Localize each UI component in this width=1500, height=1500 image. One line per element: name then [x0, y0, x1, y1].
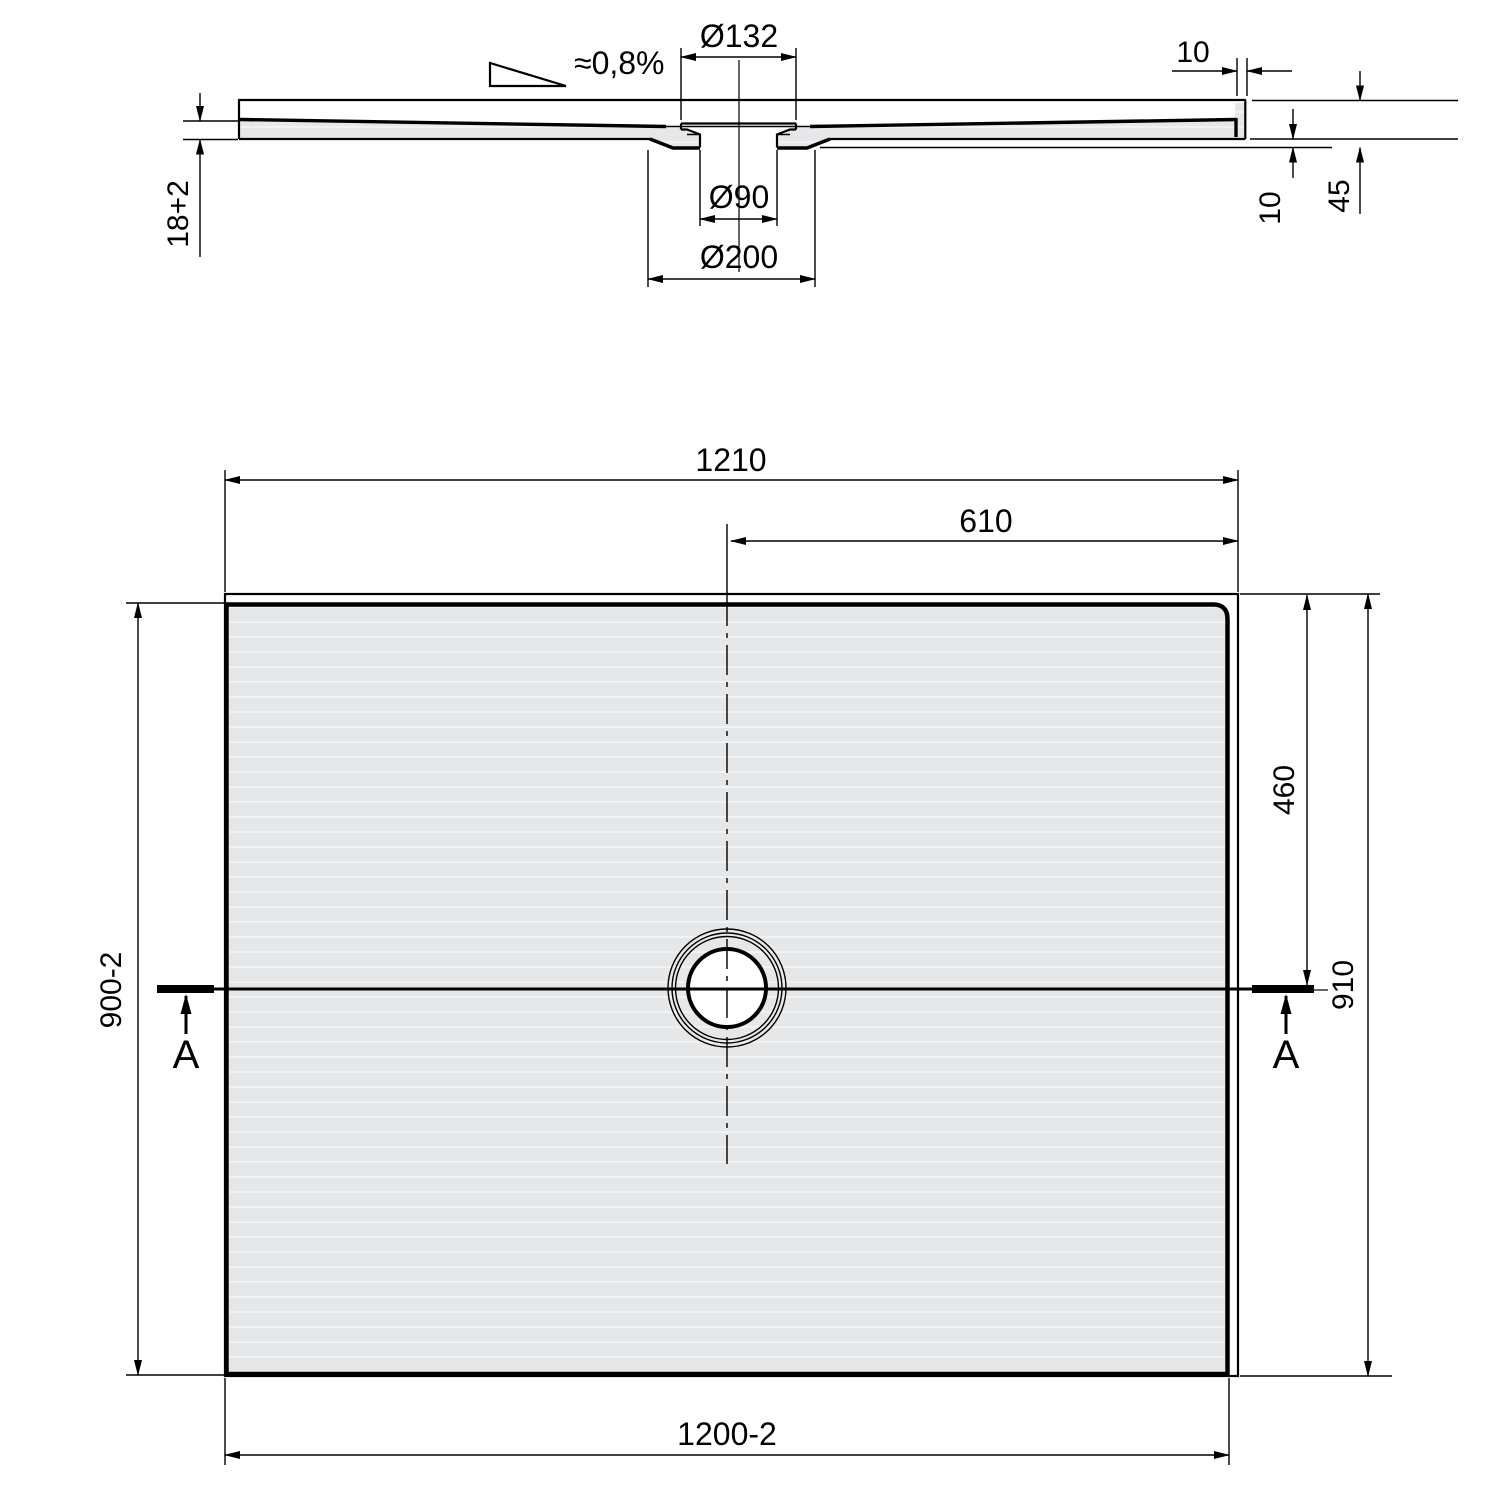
thickness-extension-lines: [183, 121, 238, 140]
width610-label: 610: [959, 503, 1012, 539]
dia90-label: Ø90: [709, 179, 769, 215]
section-marker-a-left: A: [173, 1033, 200, 1077]
slope-label: ≈0,8%: [574, 45, 665, 81]
height910-label: 910: [1327, 960, 1360, 1010]
section-marker-a-right: A: [1273, 1033, 1300, 1077]
width1200-label: 1200-2: [677, 1416, 777, 1452]
height45-label: 45: [1323, 179, 1356, 212]
lip-width-label: 10: [1176, 36, 1209, 69]
width1210-label: 1210: [695, 442, 766, 478]
dia200-label: Ø200: [700, 239, 778, 275]
thickness-label: 18+2: [162, 180, 195, 248]
height900-label: 900-2: [95, 952, 128, 1029]
width1210-extension-lines: [225, 470, 1238, 592]
lip-width-extension-lines: [1237, 58, 1247, 96]
section-view: ≈0,8% Ø132 Ø90 Ø200 18+2 10 10: [162, 18, 1458, 287]
slope-symbol-icon: [490, 63, 566, 86]
dia132-label: Ø132: [700, 18, 778, 54]
drop-label: 10: [1254, 191, 1287, 224]
plan-view: A A 1210 610 900-2 910 460 1200-2: [95, 442, 1392, 1465]
technical-drawing-shower-tray: ≈0,8% Ø132 Ø90 Ø200 18+2 10 10: [0, 0, 1500, 1500]
offset460-label: 460: [1268, 765, 1301, 815]
